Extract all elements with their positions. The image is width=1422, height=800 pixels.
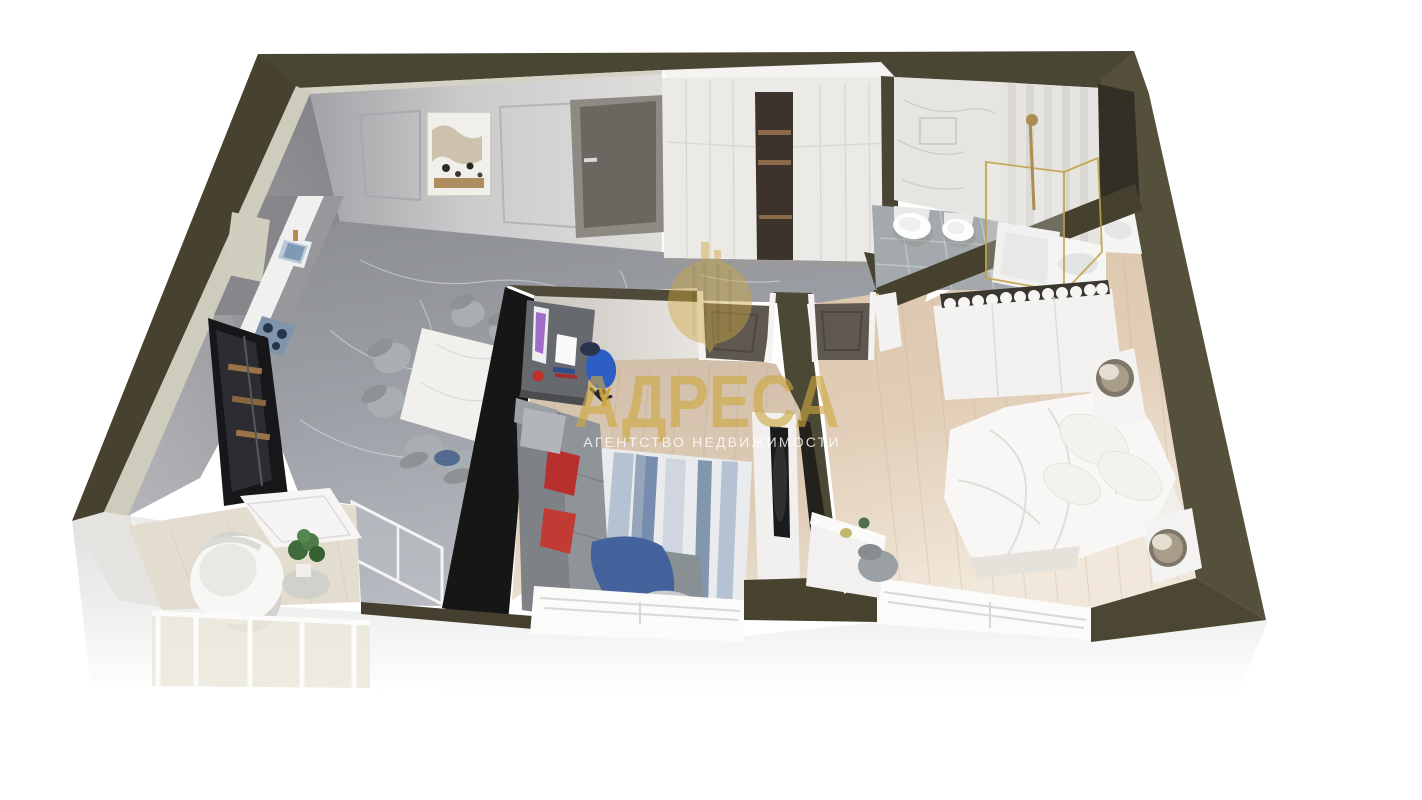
svg-text:АДРЕСА: АДРЕСА xyxy=(574,360,840,443)
svg-text:АГЕНТСТВО НЕДВИЖИМОСТИ: АГЕНТСТВО НЕДВИЖИМОСТИ xyxy=(583,434,840,450)
